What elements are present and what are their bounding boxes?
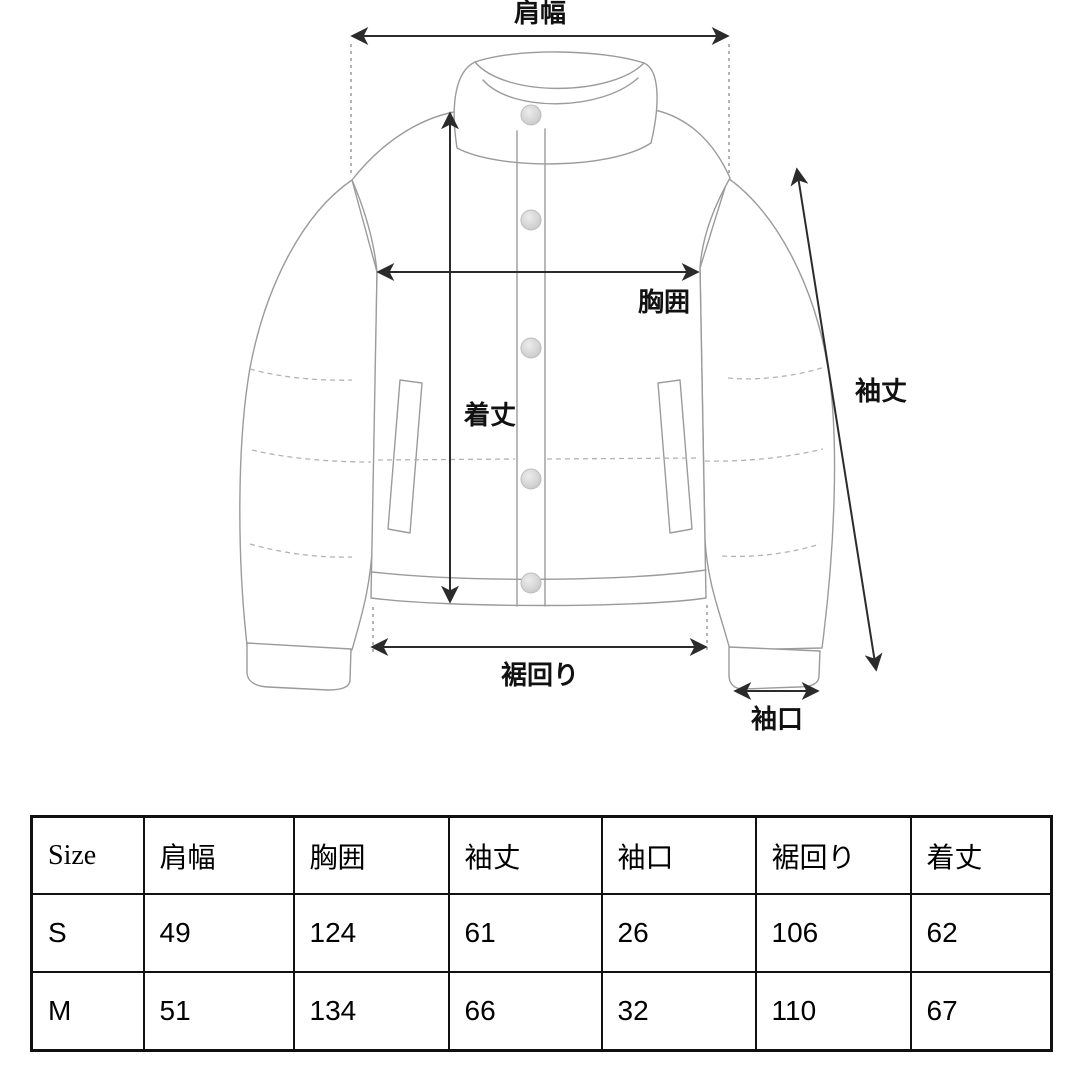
header-body-length: 着丈 bbox=[911, 817, 1052, 895]
cell-size: M bbox=[32, 972, 144, 1051]
cell-size: S bbox=[32, 894, 144, 972]
cell-sleeve-length: 61 bbox=[449, 894, 602, 972]
cell-chest: 134 bbox=[294, 972, 449, 1051]
hem-label: 裾回り bbox=[501, 661, 579, 690]
size-table-container: Size 肩幅 胸囲 袖丈 袖口 裾回り 着丈 S 49 124 61 26 1… bbox=[30, 815, 1050, 1043]
jacket-measurement-diagram: 肩幅 胸囲 着丈 袖丈 裾回り 袖口 bbox=[0, 0, 1080, 780]
snap-button bbox=[521, 210, 541, 230]
table-row-size-s: S 49 124 61 26 106 62 bbox=[32, 894, 1052, 972]
table-row-size-m: M 51 134 66 32 110 67 bbox=[32, 972, 1052, 1051]
body-length-label: 着丈 bbox=[463, 400, 516, 430]
cell-hem: 106 bbox=[756, 894, 911, 972]
cell-chest: 124 bbox=[294, 894, 449, 972]
header-size: Size bbox=[32, 817, 144, 895]
size-table: Size 肩幅 胸囲 袖丈 袖口 裾回り 着丈 S 49 124 61 26 1… bbox=[30, 815, 1053, 1052]
cell-shoulder: 51 bbox=[144, 972, 294, 1051]
snap-button bbox=[521, 105, 541, 125]
snap-button bbox=[521, 338, 541, 358]
cell-shoulder: 49 bbox=[144, 894, 294, 972]
right-cuff bbox=[729, 647, 820, 689]
cuff-label: 袖口 bbox=[751, 704, 803, 734]
snap-button bbox=[521, 573, 541, 593]
sleeve-length-label: 袖丈 bbox=[855, 376, 907, 406]
right-sleeve bbox=[700, 178, 835, 650]
cell-cuff: 32 bbox=[602, 972, 756, 1051]
collar bbox=[454, 52, 657, 164]
header-shoulder: 肩幅 bbox=[144, 817, 294, 895]
cell-hem: 110 bbox=[756, 972, 911, 1051]
left-cuff bbox=[247, 643, 351, 690]
snap-button bbox=[521, 469, 541, 489]
cell-body-length: 67 bbox=[911, 972, 1052, 1051]
table-header-row: Size 肩幅 胸囲 袖丈 袖口 裾回り 着丈 bbox=[32, 817, 1052, 895]
shoulder-width-label: 肩幅 bbox=[514, 0, 566, 28]
header-chest: 胸囲 bbox=[294, 817, 449, 895]
cell-sleeve-length: 66 bbox=[449, 972, 602, 1051]
left-sleeve bbox=[240, 180, 377, 650]
chest-label: 胸囲 bbox=[638, 288, 690, 317]
size-chart-image: 肩幅 胸囲 着丈 袖丈 裾回り 袖口 Size 肩幅 胸囲 袖丈 袖口 裾回り … bbox=[0, 0, 1080, 1080]
header-cuff: 袖口 bbox=[602, 817, 756, 895]
cell-body-length: 62 bbox=[911, 894, 1052, 972]
header-hem: 裾回り bbox=[756, 817, 911, 895]
cell-cuff: 26 bbox=[602, 894, 756, 972]
header-sleeve-length: 袖丈 bbox=[449, 817, 602, 895]
